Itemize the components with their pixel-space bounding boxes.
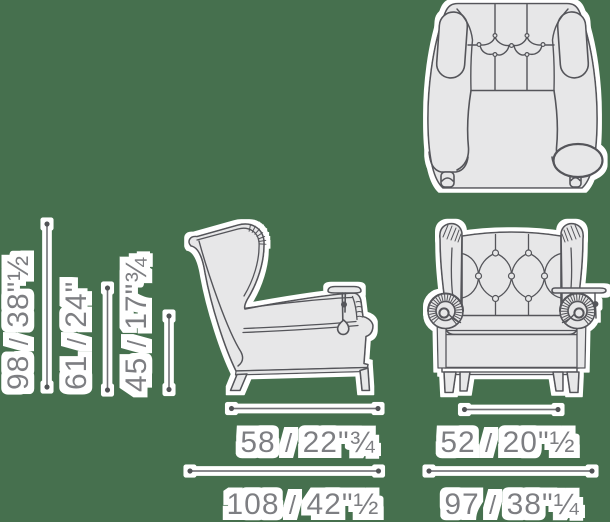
svg-text:52 / 20"½: 52 / 20"½ [440, 426, 575, 459]
svg-text:61 / 24": 61 / 24" [60, 281, 93, 390]
svg-text:58 / 22"¾: 58 / 22"¾ [240, 426, 375, 459]
svg-text:45 / 17"¾: 45 / 17"¾ [120, 257, 153, 392]
svg-text:97 / 38"¼: 97 / 38"¼ [444, 488, 579, 521]
svg-text:108 / 42"½: 108 / 42"½ [227, 488, 380, 521]
svg-text:98 / 38"½: 98 / 38"½ [2, 255, 35, 390]
